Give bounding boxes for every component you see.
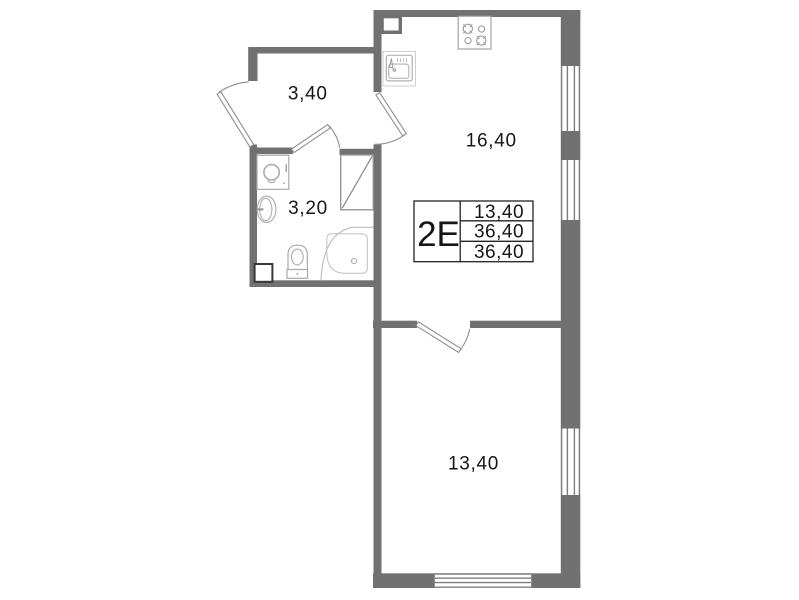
svg-text:16,40: 16,40 <box>466 130 517 151</box>
svg-text:13,40: 13,40 <box>448 454 499 475</box>
svg-text:3,20: 3,20 <box>288 198 328 219</box>
svg-text:36,40: 36,40 <box>474 242 524 263</box>
svg-text:13,40: 13,40 <box>474 202 524 223</box>
svg-text:36,40: 36,40 <box>474 221 524 242</box>
svg-text:2Е: 2Е <box>417 215 460 254</box>
svg-text:3,40: 3,40 <box>288 84 328 105</box>
